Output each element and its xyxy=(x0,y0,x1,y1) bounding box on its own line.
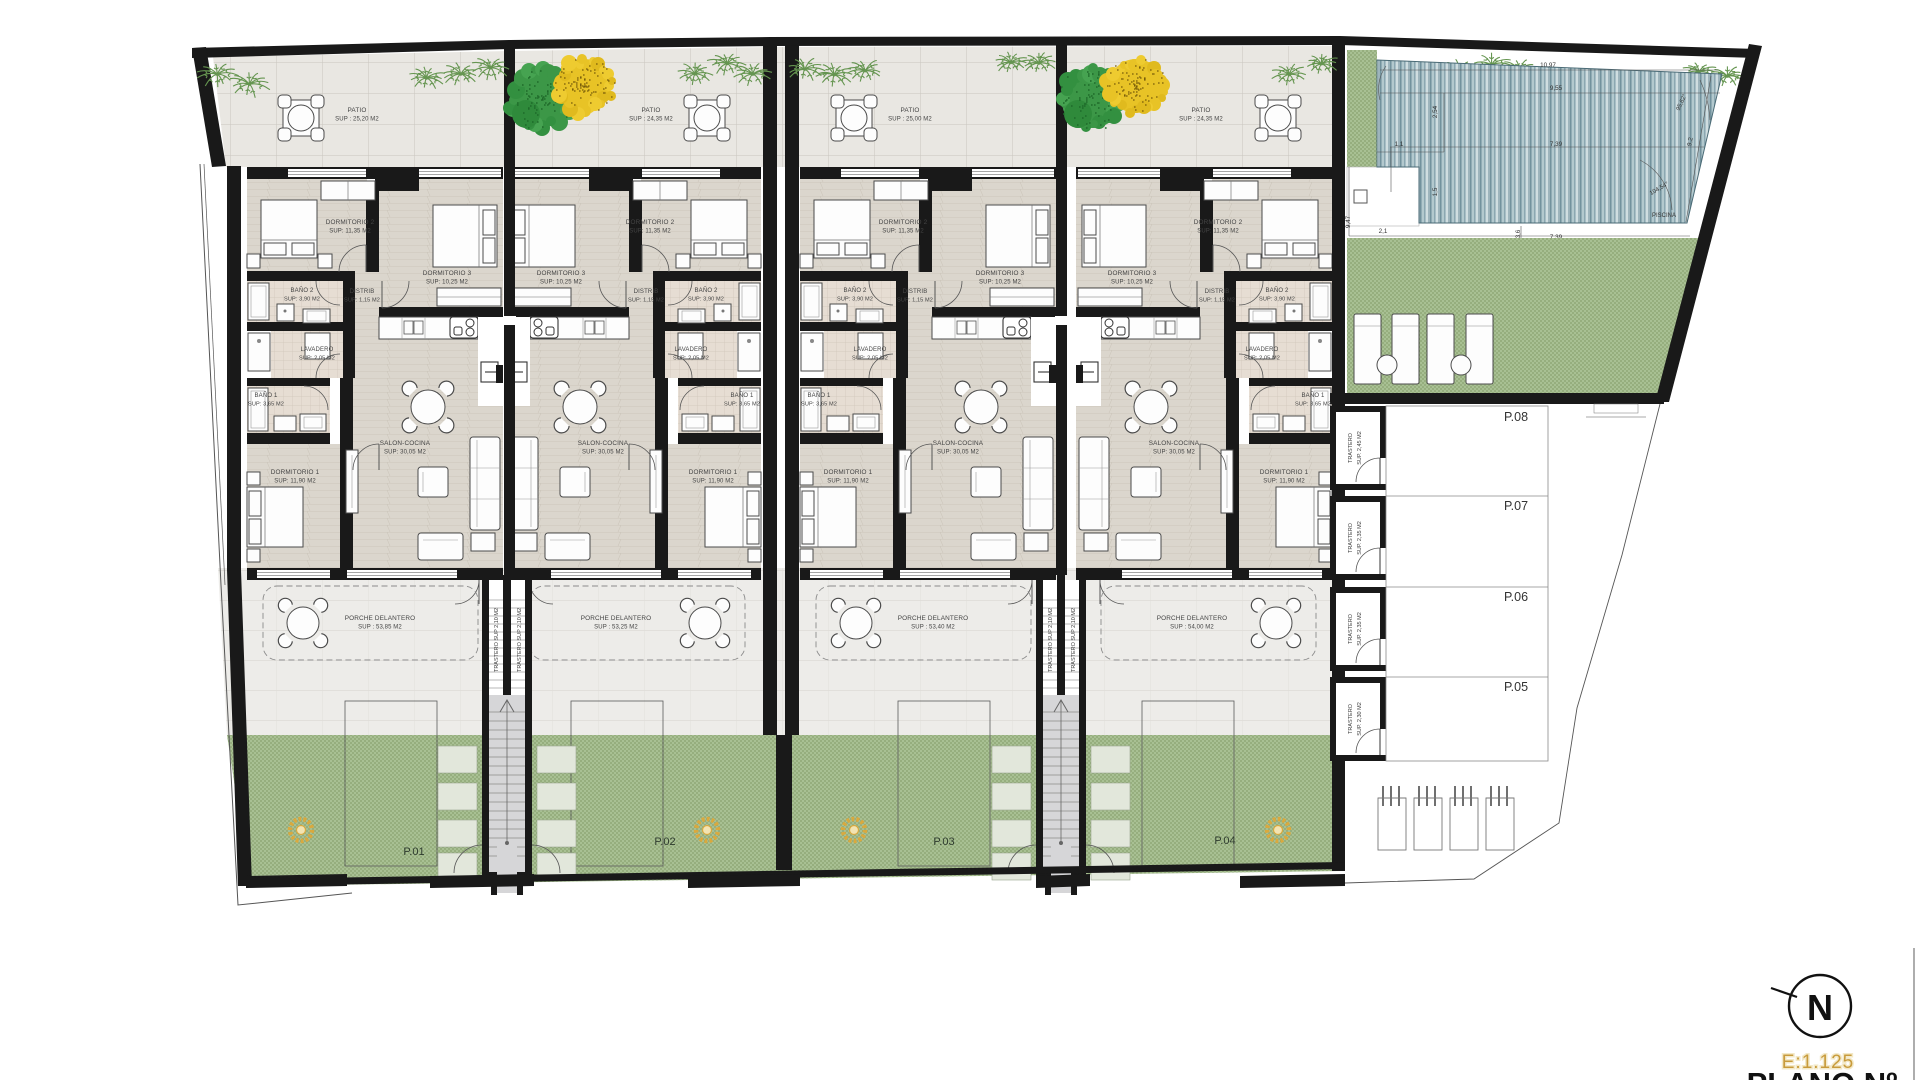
svg-text:BAÑO 2: BAÑO 2 xyxy=(1266,287,1289,294)
svg-text:DORMITORIO 2: DORMITORIO 2 xyxy=(1194,219,1243,226)
svg-text:1,5: 1,5 xyxy=(1432,187,1439,196)
svg-text:TRASTERO SUP 2,10 M2: TRASTERO SUP 2,10 M2 xyxy=(494,608,500,672)
svg-text:SUP: 1,15 M2: SUP: 1,15 M2 xyxy=(628,298,664,304)
svg-text:SUP: 3,65 M2: SUP: 3,65 M2 xyxy=(1295,402,1331,408)
svg-text:LAVADERO: LAVADERO xyxy=(1246,347,1279,353)
svg-text:LAVADERO: LAVADERO xyxy=(854,347,887,353)
svg-text:SUP. 2,30 M2: SUP. 2,30 M2 xyxy=(1357,702,1363,736)
svg-text:SUP: 3,90 M2: SUP: 3,90 M2 xyxy=(837,297,873,303)
svg-text:TRASTERO: TRASTERO xyxy=(1348,613,1354,644)
svg-text:DISTRIB: DISTRIB xyxy=(350,289,375,295)
svg-text:SUP: 11,35 M2: SUP: 11,35 M2 xyxy=(1197,229,1239,235)
svg-text:PATIO: PATIO xyxy=(901,107,920,114)
svg-text:TRASTERO SUP 2,10 M2: TRASTERO SUP 2,10 M2 xyxy=(1048,608,1054,672)
svg-text:DORMITORIO 2: DORMITORIO 2 xyxy=(879,219,928,226)
svg-text:TRASTERO: TRASTERO xyxy=(1348,703,1354,734)
svg-text:DORMITORIO 2: DORMITORIO 2 xyxy=(626,219,675,226)
svg-text:2,1: 2,1 xyxy=(1379,228,1388,235)
svg-text:SUP: 1,15 M2: SUP: 1,15 M2 xyxy=(344,298,380,304)
svg-text:DORMITORIO 3: DORMITORIO 3 xyxy=(1108,270,1157,277)
svg-text:SUP: 1,15 M2: SUP: 1,15 M2 xyxy=(1199,298,1235,304)
svg-text:SUP: 3,90 M2: SUP: 3,90 M2 xyxy=(688,297,724,303)
svg-text:SUP: 2,05 M2: SUP: 2,05 M2 xyxy=(299,356,335,362)
svg-text:SUP. 2,35 M2: SUP. 2,35 M2 xyxy=(1357,612,1363,646)
svg-text:SUP. 2,35 M2: SUP. 2,35 M2 xyxy=(1357,521,1363,555)
svg-text:7,39: 7,39 xyxy=(1550,141,1563,148)
svg-text:SUP: 3,65 M2: SUP: 3,65 M2 xyxy=(248,402,284,408)
svg-text:SUP : 53,40 M2: SUP : 53,40 M2 xyxy=(911,625,955,631)
svg-text:SUP: 11,35 M2: SUP: 11,35 M2 xyxy=(629,229,671,235)
svg-text:PISCINA: PISCINA xyxy=(1652,213,1676,219)
svg-text:P.02: P.02 xyxy=(654,836,675,848)
svg-text:SUP : 53,25 M2: SUP : 53,25 M2 xyxy=(594,625,638,631)
svg-text:TRASTERO: TRASTERO xyxy=(1348,522,1354,553)
svg-text:P.07: P.07 xyxy=(1504,499,1528,513)
svg-text:SUP : 53,85 M2: SUP : 53,85 M2 xyxy=(358,625,402,631)
svg-text:TRASTERO: TRASTERO xyxy=(1348,432,1354,463)
svg-text:SUP : 54,00 M2: SUP : 54,00 M2 xyxy=(1170,625,1214,631)
svg-text:SUP: 11,90 M2: SUP: 11,90 M2 xyxy=(827,479,869,485)
svg-text:9,47: 9,47 xyxy=(1345,215,1352,228)
svg-text:DORMITORIO 3: DORMITORIO 3 xyxy=(976,270,1025,277)
svg-text:P.01: P.01 xyxy=(403,846,424,858)
svg-text:SUP: 1,15 M2: SUP: 1,15 M2 xyxy=(897,298,933,304)
svg-text:SUP: 30,05 M2: SUP: 30,05 M2 xyxy=(937,450,980,456)
svg-text:SUP: 2,05 M2: SUP: 2,05 M2 xyxy=(1244,356,1280,362)
svg-text:SUP: 3,65 M2: SUP: 3,65 M2 xyxy=(724,402,760,408)
svg-text:P.08: P.08 xyxy=(1504,410,1528,424)
svg-text:LAVADERO: LAVADERO xyxy=(301,347,334,353)
svg-text:SUP: 3,65 M2: SUP: 3,65 M2 xyxy=(801,402,837,408)
svg-text:P.03: P.03 xyxy=(933,836,954,848)
svg-text:DORMITORIO 1: DORMITORIO 1 xyxy=(271,469,320,476)
svg-text:BAÑO 1: BAÑO 1 xyxy=(808,392,831,399)
svg-text:PATIO: PATIO xyxy=(348,107,367,114)
svg-text:PLANO Nº: PLANO Nº xyxy=(1747,1066,1898,1080)
svg-text:PORCHE DELANTERO: PORCHE DELANTERO xyxy=(898,615,969,622)
svg-text:DORMITORIO 1: DORMITORIO 1 xyxy=(689,469,738,476)
svg-text:P.05: P.05 xyxy=(1504,680,1528,694)
svg-text:SUP: 30,05 M2: SUP: 30,05 M2 xyxy=(582,450,625,456)
svg-text:PATIO: PATIO xyxy=(1192,107,1211,114)
svg-text:SUP: 30,05 M2: SUP: 30,05 M2 xyxy=(384,450,427,456)
svg-text:SUP: 10,25 M2: SUP: 10,25 M2 xyxy=(1111,280,1154,286)
svg-text:SUP: 10,25 M2: SUP: 10,25 M2 xyxy=(979,280,1022,286)
svg-text:SUP: 10,25 M2: SUP: 10,25 M2 xyxy=(540,280,583,286)
svg-text:DORMITORIO 1: DORMITORIO 1 xyxy=(824,469,873,476)
svg-text:SUP : 24,35 M2: SUP : 24,35 M2 xyxy=(1179,117,1223,123)
svg-text:DISTRIB: DISTRIB xyxy=(903,289,928,295)
svg-text:SALON-COCINA: SALON-COCINA xyxy=(578,440,629,447)
svg-text:DISTRIB: DISTRIB xyxy=(1205,289,1230,295)
svg-text:SUP: 3,90 M2: SUP: 3,90 M2 xyxy=(1259,297,1295,303)
svg-text:SUP: 11,35 M2: SUP: 11,35 M2 xyxy=(882,229,924,235)
svg-text:1,1: 1,1 xyxy=(1395,141,1404,148)
svg-text:10,97: 10,97 xyxy=(1540,62,1556,69)
svg-text:BAÑO 1: BAÑO 1 xyxy=(1302,392,1325,399)
svg-text:PORCHE DELANTERO: PORCHE DELANTERO xyxy=(1157,615,1228,622)
svg-text:2,54: 2,54 xyxy=(1432,105,1439,118)
svg-text:SUP: 3,90 M2: SUP: 3,90 M2 xyxy=(284,297,320,303)
svg-text:N: N xyxy=(1807,987,1833,1028)
svg-text:DORMITORIO 3: DORMITORIO 3 xyxy=(537,270,586,277)
svg-text:SUP: 11,90 M2: SUP: 11,90 M2 xyxy=(1263,479,1305,485)
svg-text:PORCHE DELANTERO: PORCHE DELANTERO xyxy=(581,615,652,622)
svg-text:BAÑO 1: BAÑO 1 xyxy=(255,392,278,399)
svg-text:BAÑO 2: BAÑO 2 xyxy=(844,287,867,294)
svg-text:TRASTERO SUP 2,10 M2: TRASTERO SUP 2,10 M2 xyxy=(517,608,523,672)
svg-text:SUP: 11,90 M2: SUP: 11,90 M2 xyxy=(692,479,734,485)
svg-text:SALON-COCINA: SALON-COCINA xyxy=(1149,440,1200,447)
svg-text:DORMITORIO 2: DORMITORIO 2 xyxy=(326,219,375,226)
svg-text:SUP : 24,35 M2: SUP : 24,35 M2 xyxy=(629,117,673,123)
svg-text:DORMITORIO 1: DORMITORIO 1 xyxy=(1260,469,1309,476)
svg-text:SUP: 30,05 M2: SUP: 30,05 M2 xyxy=(1153,450,1196,456)
svg-text:SUP : 25,20 M2: SUP : 25,20 M2 xyxy=(335,117,379,123)
svg-text:PATIO: PATIO xyxy=(642,107,661,114)
svg-text:LAVADERO: LAVADERO xyxy=(675,347,708,353)
svg-text:SUP : 25,00 M2: SUP : 25,00 M2 xyxy=(888,117,932,123)
svg-text:P.06: P.06 xyxy=(1504,590,1528,604)
svg-text:SUP: 11,90 M2: SUP: 11,90 M2 xyxy=(274,479,316,485)
svg-text:SUP: 2,05 M2: SUP: 2,05 M2 xyxy=(673,356,709,362)
svg-text:BAÑO 1: BAÑO 1 xyxy=(731,392,754,399)
svg-text:SUP: 11,35 M2: SUP: 11,35 M2 xyxy=(329,229,371,235)
svg-text:SUP: 2,05 M2: SUP: 2,05 M2 xyxy=(852,356,888,362)
svg-text:BAÑO 2: BAÑO 2 xyxy=(695,287,718,294)
svg-text:TRASTERO SUP 2,10 M2: TRASTERO SUP 2,10 M2 xyxy=(1071,608,1077,672)
svg-text:PORCHE DELANTERO: PORCHE DELANTERO xyxy=(345,615,416,622)
svg-text:SUP. 2,45 M2: SUP. 2,45 M2 xyxy=(1357,431,1363,465)
svg-text:DISTRIB: DISTRIB xyxy=(634,289,659,295)
svg-text:P.04: P.04 xyxy=(1214,835,1235,847)
svg-text:SUP: 10,25 M2: SUP: 10,25 M2 xyxy=(426,280,469,286)
svg-text:9,55: 9,55 xyxy=(1550,85,1563,92)
svg-text:3,6: 3,6 xyxy=(1516,229,1522,238)
svg-text:SALON-COCINA: SALON-COCINA xyxy=(380,440,431,447)
svg-text:DORMITORIO 3: DORMITORIO 3 xyxy=(423,270,472,277)
svg-text:SALON-COCINA: SALON-COCINA xyxy=(933,440,984,447)
svg-text:BAÑO 2: BAÑO 2 xyxy=(291,287,314,294)
